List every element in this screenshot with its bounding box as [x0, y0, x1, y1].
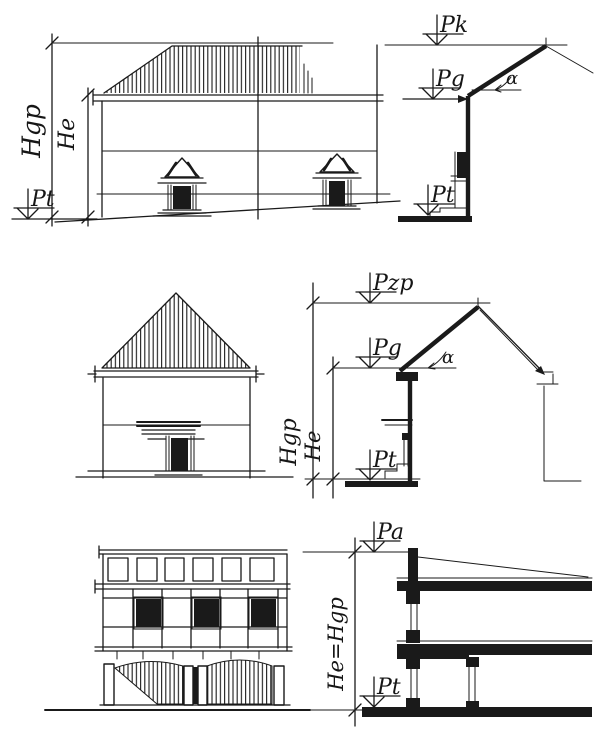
- middle-roof-section: Pzp Pg α Pt: [277, 271, 581, 498]
- sketch-page: Hgp He Pt Pk Pg α: [0, 0, 600, 734]
- pt-level-marker-left: Pt: [14, 187, 55, 219]
- pk-level-marker: Pk: [423, 13, 468, 45]
- middle-dimensions: Hgp He: [277, 283, 339, 498]
- far-eave-bracket: [537, 372, 558, 384]
- column-lines: [469, 667, 475, 705]
- upper-floor-windows: [108, 558, 274, 581]
- label-pg-top: Pg: [435, 67, 465, 92]
- door-cornice: [158, 178, 206, 183]
- door-steps: [313, 206, 360, 209]
- base-block: [466, 701, 479, 708]
- roof-hatch-extra: [304, 64, 312, 93]
- pt-level-marker: Pt: [360, 675, 401, 707]
- slope-arrowhead: [535, 366, 545, 375]
- interior-column: [466, 657, 479, 708]
- label-he-eq-hgp: He=Hgp: [324, 597, 348, 692]
- gable-roof-hatch: [102, 293, 250, 368]
- pt-level-marker: Pt: [356, 448, 397, 480]
- label-hgp-top: Hgp: [17, 104, 46, 159]
- pillar: [198, 666, 207, 705]
- architectural-diagram: Hgp He Pt Pk Pg α: [0, 0, 600, 734]
- roof-angle: α: [428, 347, 454, 369]
- base-block: [406, 698, 420, 708]
- roof-slope-far-inner: [480, 310, 540, 372]
- column-lines: [411, 669, 417, 700]
- pg-level-marker: Pg: [356, 336, 402, 368]
- window: [222, 558, 241, 581]
- dimension-lines: [313, 283, 333, 498]
- door-opening: [173, 186, 191, 209]
- roof-slab: [397, 581, 592, 591]
- roof-screed-slope: [418, 557, 588, 577]
- lower-wall-column: [406, 659, 420, 708]
- window: [250, 558, 274, 581]
- parapet: [408, 548, 418, 585]
- top-wall-section: Pk Pg α Pt: [385, 13, 593, 222]
- door-feature-left: [153, 158, 211, 216]
- pg-level-marker: Pg: [403, 67, 468, 103]
- door-cornice-lower: [142, 430, 204, 439]
- pillar: [274, 666, 284, 705]
- floor-beam: [397, 655, 469, 659]
- floor-slab: [397, 644, 592, 655]
- joint-block: [406, 659, 420, 669]
- roof-hatch: [104, 46, 300, 93]
- top-cornice: [99, 546, 287, 558]
- label-pa: Pa: [376, 520, 404, 545]
- floor-slab: [345, 481, 418, 487]
- middle-building-elevation: [76, 293, 293, 478]
- pillar: [184, 666, 193, 705]
- capital-block: [466, 657, 479, 667]
- column-lines: [411, 604, 417, 630]
- interior-steps: [430, 208, 466, 217]
- label-pt-bottom: Pt: [376, 675, 401, 700]
- eave-block: [396, 372, 418, 381]
- door-feature: [137, 422, 204, 475]
- joint-block: [406, 591, 420, 604]
- bottom-building-elevation: [45, 546, 310, 710]
- label-he-top: He: [55, 118, 80, 151]
- door-feature-right: [313, 154, 361, 209]
- pillar: [104, 664, 114, 705]
- floor-slab: [398, 216, 472, 222]
- label-pk: Pk: [439, 13, 468, 38]
- window: [193, 558, 213, 581]
- window: [137, 558, 157, 581]
- label-alpha-top: α: [506, 68, 518, 89]
- ground-floor-awnings: [104, 660, 284, 705]
- label-pt-top-right: Pt: [430, 183, 455, 208]
- label-pzp: Pzp: [372, 271, 413, 296]
- roof-slope-far: [478, 306, 543, 372]
- label-hgp-mid: Hgp: [277, 418, 302, 466]
- window: [165, 558, 184, 581]
- pa-level-marker: Pa: [360, 520, 404, 552]
- lower-band: [95, 647, 292, 651]
- dark-window: [194, 599, 219, 627]
- bottom-dimension: He=Hgp: [324, 538, 361, 726]
- awning-hatch-right: [207, 660, 272, 704]
- ground-slab: [362, 707, 592, 717]
- label-pt-top-left: Pt: [30, 187, 55, 212]
- dark-window: [136, 599, 161, 627]
- upper-band: [95, 580, 290, 593]
- door-cornice-top: [137, 422, 200, 426]
- far-roof-slope: [546, 38, 593, 73]
- eaves-band: [93, 91, 383, 105]
- far-wall-and-ground: [544, 386, 581, 481]
- label-he-mid: He: [301, 431, 325, 463]
- door-cornice: [313, 173, 361, 178]
- window: [108, 558, 128, 581]
- door-opening: [171, 438, 188, 471]
- label-pg-mid: Pg: [372, 336, 402, 361]
- column-stubs: [117, 651, 259, 659]
- top-dimensions: Hgp He Pt: [14, 34, 94, 226]
- upper-wall-column: [406, 591, 420, 643]
- door-opening: [329, 181, 345, 206]
- pt-level-marker-section: Pt: [414, 183, 455, 215]
- roof-slope-near: [400, 307, 478, 371]
- sill-block: [402, 433, 412, 440]
- dark-window: [251, 599, 276, 627]
- pillar-gap: [193, 667, 198, 704]
- ground-lines: [76, 471, 293, 477]
- middle-floor-windows: [134, 597, 278, 629]
- pzp-level-marker: Pzp: [356, 271, 413, 303]
- bottom-wall-section: Pa Pt: [303, 520, 592, 726]
- label-pt-mid: Pt: [372, 448, 397, 473]
- label-alpha-mid: α: [442, 347, 454, 368]
- window-head: [457, 152, 466, 178]
